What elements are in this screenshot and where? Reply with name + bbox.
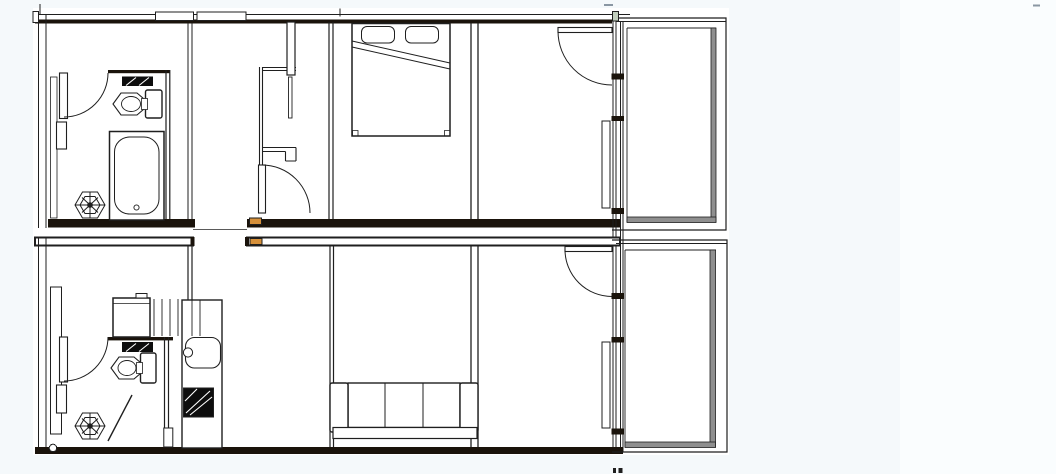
artifact-dash-top-right [1033,5,1040,7]
toilet-tank [146,90,163,118]
wall-panel [57,122,67,149]
floor-plan-drawing: Architectural floor plan — two stacked r… [0,0,1056,474]
artifact-dash-top-left [604,4,613,6]
door-leaf [259,165,266,213]
floor-drain-center [87,202,93,208]
top-wall-band-west [35,238,193,246]
lower-door-threshold [250,239,262,245]
washer-box-tab [136,294,147,299]
balcony-railing-right [711,28,716,222]
balcony-railing-right [710,250,716,447]
bathroom-top-wall [108,70,170,73]
door-leaf [60,337,68,382]
sink-faucet [183,348,192,357]
door-leaf [565,247,612,252]
corner-detail-circle [49,444,57,452]
wall-panel [57,385,67,413]
bathtub [110,132,165,221]
sofa-seats [348,383,460,428]
kitchen-counter [182,300,222,448]
hanging-wall [287,22,295,75]
floor-plan-page: Architectural floor plan — two stacked r… [0,0,1056,474]
toilet-hinge [137,363,143,374]
floor-drain-center [87,423,93,429]
balcony-railing-bottom [627,217,716,223]
base-cabinet [164,428,173,447]
double-bed [352,24,450,137]
bathtub-rim [110,132,165,221]
balcony-railing-bottom [625,442,716,448]
page-background-right [900,0,1056,474]
toilet-hinge [142,99,148,110]
sofa-arm-left [330,383,348,432]
upper-door-threshold [250,218,262,225]
sliding-panel [289,77,293,118]
toilet [113,90,162,118]
window-frame-tick [613,12,619,22]
door-leaf [60,73,68,119]
lower-bottom-wall-band [35,447,623,454]
sofa-back [333,428,477,439]
top-wall-windows [156,12,247,21]
sofa [330,383,478,439]
top-wall-band [35,20,612,24]
corner-notch [33,12,39,23]
top-wall-band-east [247,238,620,246]
door-leaf [558,28,612,33]
sofa-arm-right [460,383,478,432]
bed-frame [352,24,450,137]
